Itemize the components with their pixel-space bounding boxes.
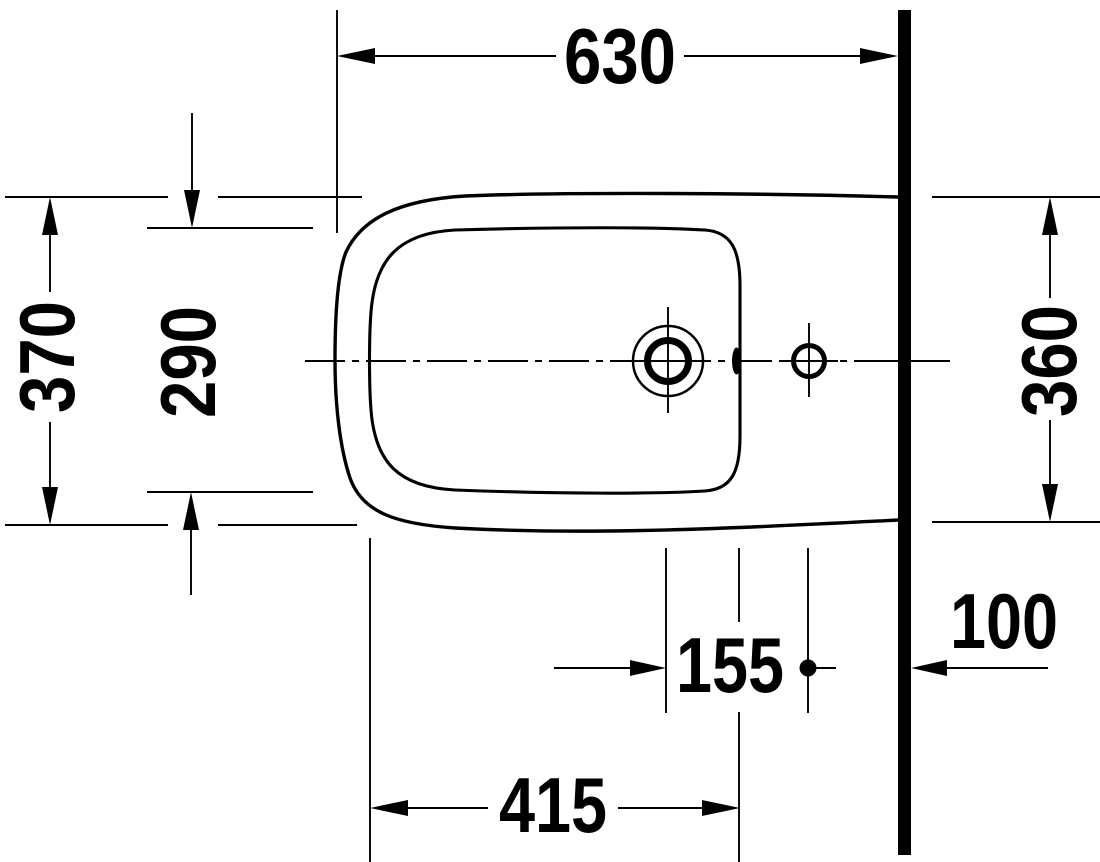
arrowhead-down <box>1042 484 1058 522</box>
dim-label-415: 415 <box>499 761 607 849</box>
dim-label-360: 360 <box>1005 305 1093 417</box>
dim-label-630: 630 <box>564 12 676 100</box>
bidet-outer-outline <box>335 193 898 531</box>
arrowhead-left <box>911 660 947 676</box>
arrowhead-down <box>184 190 200 228</box>
dim-label-100: 100 <box>950 577 1058 665</box>
arrowhead-up <box>42 197 58 235</box>
arrowhead-left <box>370 800 408 816</box>
drawing-canvas: 630 370 290 360 <box>0 0 1100 862</box>
arrowhead-up <box>183 492 199 530</box>
dim-label-155: 155 <box>676 621 784 709</box>
arrowhead-right <box>860 48 898 64</box>
bidet-body <box>335 193 898 531</box>
dim-overall-width: 630 <box>337 10 898 233</box>
rim-outlet-notch <box>732 348 741 375</box>
arrowhead-right <box>702 800 740 816</box>
dim-label-290: 290 <box>144 306 232 418</box>
dim-depth-at-wall: 360 <box>932 197 1100 522</box>
dim-inner-basin-length: 415 <box>370 761 740 849</box>
dim-label-370: 370 <box>3 301 91 413</box>
dim-dot <box>800 660 817 677</box>
arrowhead-right <box>630 660 666 676</box>
dim-inner-rim-depth: 290 <box>144 113 313 595</box>
arrowhead-down <box>42 487 58 525</box>
dim-tap-to-side-hole: 155 <box>554 621 836 709</box>
arrowhead-up <box>1042 197 1058 235</box>
bidet-technical-drawing: 630 370 290 360 <box>0 0 1100 862</box>
dim-side-hole-to-wall: 100 <box>911 577 1058 676</box>
wall-line <box>898 10 911 855</box>
arrowhead-left <box>337 48 375 64</box>
